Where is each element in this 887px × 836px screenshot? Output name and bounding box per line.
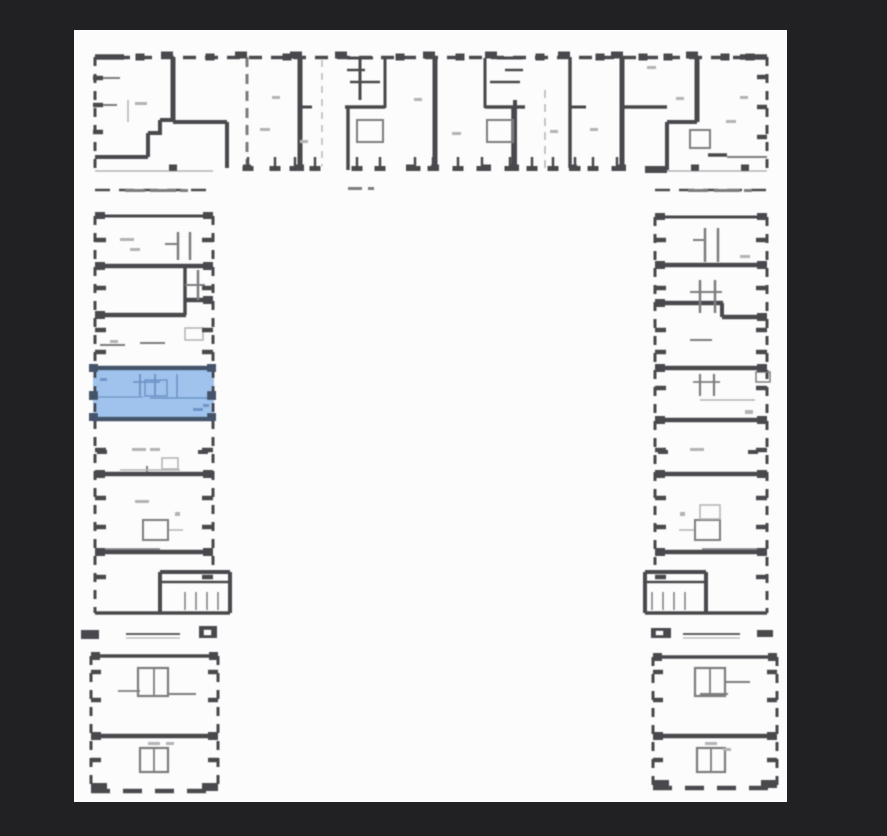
- window-pier: [653, 758, 663, 763]
- window-pier: [655, 286, 666, 291]
- wall-pier: [757, 416, 767, 424]
- window-pier: [208, 698, 218, 703]
- wall-pier: [95, 470, 105, 478]
- wall-pier: [655, 548, 665, 556]
- wall-pier: [744, 189, 752, 192]
- window-pier: [169, 165, 177, 172]
- wall-pier: [272, 96, 280, 99]
- wall-pier: [207, 413, 216, 421]
- wall-pier: [175, 512, 180, 516]
- wall-pier: [207, 364, 216, 372]
- window-pier: [655, 238, 666, 243]
- selected-unit-highlight[interactable]: [93, 370, 214, 419]
- wall-pier: [95, 212, 105, 219]
- wall-pier: [757, 261, 767, 269]
- window-pier: [93, 76, 103, 81]
- wall-pier: [740, 96, 748, 99]
- courtyard-pier-foot: [428, 166, 439, 171]
- window-pier: [202, 238, 213, 243]
- window-pier: [423, 52, 435, 59]
- app-background: [0, 0, 887, 836]
- floor-plan: [0, 0, 887, 836]
- window-pier: [655, 448, 666, 453]
- wall-pier: [95, 311, 105, 319]
- window-pier: [757, 75, 767, 80]
- window-pier: [335, 52, 347, 59]
- courtyard-pier-foot: [375, 166, 386, 171]
- window-pier: [95, 448, 106, 453]
- wall-pier: [550, 130, 558, 133]
- wall-pier: [655, 213, 665, 220]
- courtyard-pier-foot: [527, 166, 538, 171]
- window-pier: [686, 52, 698, 59]
- wall-pier: [203, 470, 213, 478]
- courtyard-pier-foot: [352, 166, 363, 171]
- screenshot-root: { "canvas": { "width": 887, "height": 83…: [0, 0, 887, 836]
- window-pier: [91, 758, 101, 763]
- window-pier: [93, 103, 103, 108]
- wall-pier: [100, 378, 107, 381]
- wall-pier: [740, 255, 750, 258]
- wall-pier: [757, 470, 767, 478]
- window-pier: [596, 54, 605, 61]
- wall-pier: [203, 548, 213, 556]
- window-pier: [95, 328, 106, 333]
- wall-pier: [180, 189, 188, 192]
- window-pier: [756, 386, 767, 391]
- wall-pier: [208, 732, 218, 740]
- window-pier: [202, 286, 213, 291]
- window-pier: [655, 496, 666, 501]
- wall-pier: [714, 189, 740, 192]
- window-pier: [91, 698, 101, 703]
- wall-pier: [680, 512, 685, 516]
- window-pier: [757, 135, 767, 140]
- wall-pier: [89, 364, 98, 372]
- window-pier: [456, 54, 465, 61]
- wall-pier: [368, 187, 374, 190]
- courtyard-pier-foot: [570, 166, 581, 171]
- window-pier: [653, 698, 663, 703]
- courtyard-pier-foot: [290, 166, 301, 171]
- wall-pier: [414, 98, 422, 101]
- wall-pier: [91, 732, 101, 740]
- wall-pier: [95, 262, 105, 270]
- window-pier: [202, 525, 213, 530]
- window-pier: [202, 448, 213, 453]
- courtyard-pier-foot: [612, 166, 623, 171]
- window-pier: [235, 52, 247, 59]
- window-pier: [161, 52, 173, 59]
- window-pier: [95, 525, 106, 530]
- window-pier: [741, 165, 749, 172]
- window-pier: [756, 525, 767, 530]
- wall-pier: [89, 413, 98, 421]
- window-pier: [767, 758, 777, 763]
- wall-pier: [91, 652, 100, 660]
- window-pier: [93, 130, 103, 135]
- wall-pier: [348, 187, 362, 190]
- wall-pier: [690, 448, 704, 451]
- window-pier: [558, 52, 570, 59]
- wall-pier: [125, 189, 145, 192]
- wall-pier: [761, 780, 777, 788]
- wall-pier: [590, 128, 598, 131]
- window-pier: [95, 286, 106, 291]
- wall-pier: [209, 652, 218, 660]
- wall-pier: [655, 470, 665, 478]
- wall-pier: [203, 212, 213, 219]
- window-pier: [202, 350, 213, 355]
- wall-pier: [647, 66, 656, 69]
- window-pier: [655, 525, 666, 530]
- wall-pier: [166, 742, 174, 745]
- wall-pier: [150, 189, 176, 192]
- window-pier: [202, 328, 213, 333]
- wall-pier: [202, 783, 218, 791]
- courtyard-pier-foot: [477, 166, 488, 171]
- wall-pier: [705, 742, 717, 745]
- window-pier: [756, 238, 767, 243]
- window-pier: [664, 54, 673, 61]
- wall-pier: [89, 391, 98, 400]
- wall-pier: [655, 416, 665, 424]
- window-pier: [639, 54, 648, 61]
- courtyard-pier-foot: [270, 166, 281, 171]
- window-pier: [202, 575, 213, 580]
- wall-pier: [757, 313, 767, 321]
- courtyard-pier-foot: [505, 166, 516, 171]
- wall-pier: [653, 732, 663, 740]
- window-pier: [691, 165, 699, 172]
- wall-pier: [207, 391, 216, 400]
- window-pier: [721, 54, 730, 61]
- wall-pier: [645, 166, 667, 173]
- window-pier: [756, 575, 767, 580]
- courtyard-pier-foot: [310, 166, 321, 171]
- courtyard-pier-foot: [588, 166, 599, 171]
- window-pier: [536, 54, 545, 61]
- wall-notch: [204, 630, 211, 635]
- wall-pier: [726, 120, 736, 123]
- window-pier: [655, 575, 666, 580]
- wall-pier: [91, 783, 107, 791]
- wall-pier: [260, 128, 270, 131]
- window-pier: [767, 698, 777, 703]
- wall-pier: [148, 742, 160, 745]
- window-pier: [746, 54, 755, 61]
- window-pier: [756, 448, 767, 453]
- window-pier: [202, 496, 213, 501]
- window-pier: [756, 328, 767, 333]
- window-pier: [396, 54, 405, 61]
- window-pier: [767, 670, 777, 675]
- wall-pier: [655, 261, 665, 269]
- window-pier: [655, 350, 666, 355]
- wall-pier: [655, 364, 665, 372]
- wall-pier: [203, 404, 209, 407]
- wall-pier: [95, 548, 105, 556]
- window-pier: [756, 286, 767, 291]
- window-pier: [655, 328, 666, 333]
- courtyard-pier-foot: [243, 166, 254, 171]
- window-pier: [206, 54, 215, 61]
- window-pier: [611, 52, 623, 59]
- wall-pier: [203, 262, 213, 270]
- wall-pier: [120, 238, 134, 241]
- window-pier: [95, 496, 106, 501]
- wall-pier: [300, 140, 308, 143]
- wall-pier: [655, 299, 665, 307]
- window-pier: [95, 238, 106, 243]
- wall-pier: [110, 340, 118, 343]
- wall-pier: [452, 132, 461, 135]
- wall-pier: [132, 448, 146, 451]
- wall-pier: [135, 102, 147, 105]
- window-pier: [757, 105, 767, 110]
- wall-pier: [757, 364, 767, 372]
- wall-pier: [653, 653, 662, 661]
- window-pier: [208, 758, 218, 763]
- window-pier: [208, 670, 218, 675]
- wall-pier: [688, 189, 708, 192]
- wall-pier: [757, 213, 767, 220]
- courtyard-pier-foot: [410, 166, 421, 171]
- wall-pier: [135, 500, 149, 503]
- wall-pier: [150, 448, 160, 451]
- wall-pier: [653, 780, 669, 788]
- window-pier: [756, 496, 767, 501]
- wall-pier: [193, 408, 203, 411]
- wall-pier: [767, 732, 777, 740]
- window-pier: [95, 350, 106, 355]
- wall-pier: [757, 630, 773, 637]
- window-pier: [653, 670, 663, 675]
- window-pier: [485, 52, 497, 59]
- wall-pier: [757, 548, 767, 556]
- courtyard-pier-foot: [548, 166, 559, 171]
- wall-pier: [130, 248, 140, 251]
- window-pier: [756, 350, 767, 355]
- wall-pier: [676, 97, 684, 100]
- courtyard-pier-foot: [453, 166, 464, 171]
- wall-pier: [723, 748, 731, 751]
- wall-notch: [656, 631, 663, 635]
- wall-pier: [768, 653, 777, 661]
- wall-pier: [745, 410, 753, 414]
- window-pier: [91, 670, 101, 675]
- window-pier: [655, 386, 666, 391]
- wall-pier: [203, 296, 213, 304]
- window-pier: [136, 54, 145, 61]
- window-pier: [290, 52, 302, 59]
- wall-pier: [81, 630, 99, 639]
- window-pier: [95, 575, 106, 580]
